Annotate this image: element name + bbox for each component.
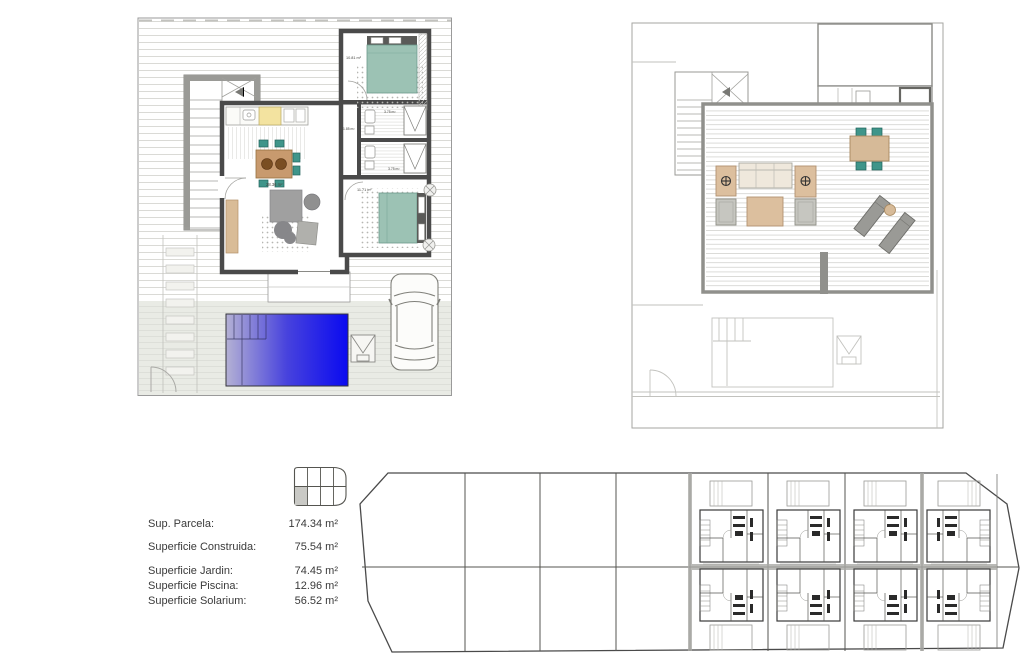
legend-label: Superficie Piscina: [148, 580, 239, 593]
legend-label: Sup. Parcela: [148, 518, 214, 531]
room-label-hallway: 1.85 m² [343, 127, 355, 131]
legend-value: 174.34 m² [288, 518, 338, 531]
room-label-bedroom-2: 11.71 m² [357, 188, 372, 192]
legend-value: 75.54 m² [295, 541, 338, 554]
room-label-bathroom-1: 3.75 m² [384, 110, 396, 114]
stove [259, 107, 281, 125]
legend-label: Superficie Solarium: [148, 595, 246, 608]
bedroom-bath-block [341, 31, 436, 255]
legend-value: 74.45 m² [295, 565, 338, 578]
legend-row: Superficie Piscina: 12.96 m² [148, 580, 338, 593]
roof-outline [818, 24, 932, 86]
room-label-bedroom-1: 10.81 m² [346, 56, 362, 60]
bed-2 [379, 193, 417, 243]
room-label-living: 28.36 m² [266, 182, 283, 187]
legend-row: Superficie Construida: 75.54 m² [148, 541, 338, 554]
area-legend: Sup. Parcela: 174.34 m² Superficie Const… [148, 518, 338, 608]
outdoor-shower-icon [351, 335, 375, 362]
legend-value: 56.52 m² [295, 595, 338, 608]
living-kitchen-room [218, 103, 347, 276]
porch-step [268, 272, 350, 302]
key-plan-icon [293, 466, 349, 508]
sideboard [226, 200, 238, 253]
coffee-table [747, 197, 783, 226]
legend-label: Superficie Construida: [148, 541, 256, 554]
legend-row: Superficie Jardin: 74.45 m² [148, 565, 338, 578]
legend-label: Superficie Jardin: [148, 565, 233, 578]
site-plan [358, 462, 1024, 662]
legend-row: Sup. Parcela: 174.34 m² [148, 518, 338, 531]
legend-row: Superficie Solarium: 56.52 m² [148, 595, 338, 608]
ground-floor-plan: 10.81 m² 1.85 m² 3.75 m² 3.75 m² 28.36 m… [137, 15, 455, 397]
sofa [739, 163, 792, 188]
swimming-pool [226, 314, 348, 386]
solarium-deck [703, 104, 932, 294]
legend-value: 12.96 m² [295, 580, 338, 593]
highlighted-plot [295, 487, 308, 506]
bed-1 [367, 45, 417, 93]
solarium-plan [625, 15, 960, 430]
plan-sheet: 10.81 m² 1.85 m² 3.75 m² 3.75 m² 28.36 m… [0, 0, 1024, 663]
car-icon [389, 274, 440, 370]
room-label-bathroom-2: 3.75 m² [388, 167, 400, 171]
side-table [885, 205, 896, 216]
